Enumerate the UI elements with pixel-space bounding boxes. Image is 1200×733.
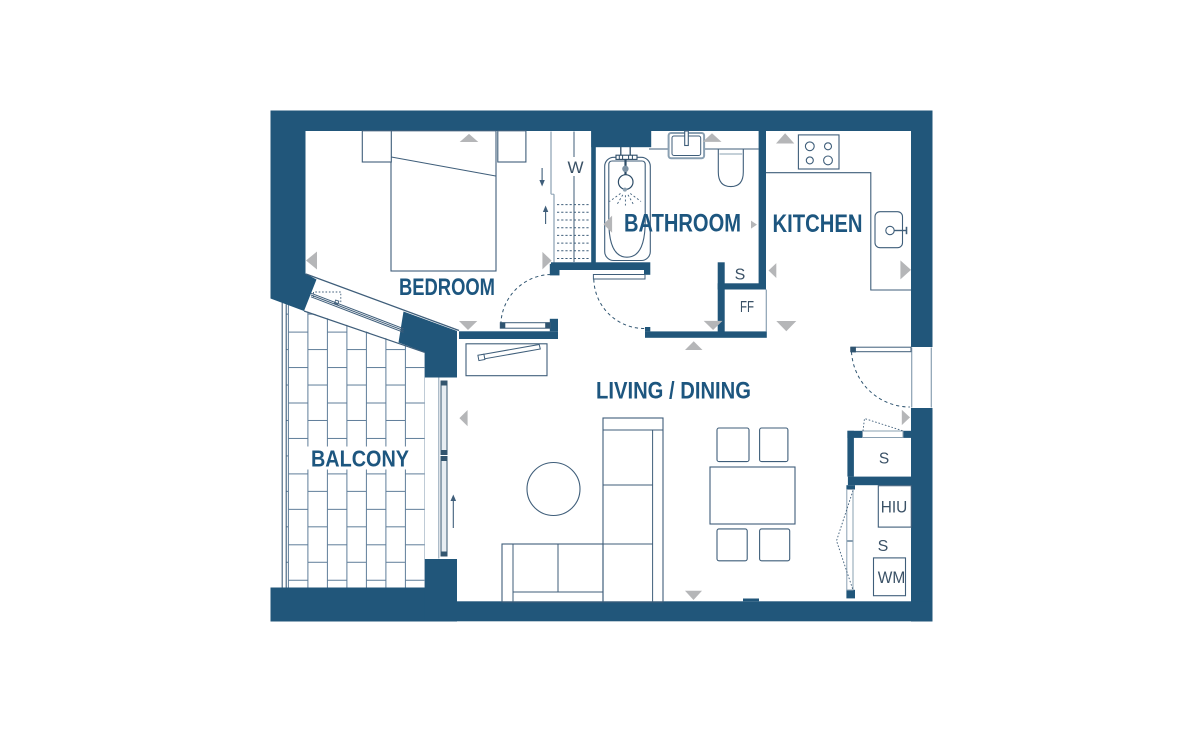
svg-text:S: S	[878, 538, 889, 555]
svg-text:BALCONY: BALCONY	[311, 446, 409, 472]
svg-text:KITCHEN: KITCHEN	[773, 210, 863, 238]
svg-text:S: S	[735, 267, 746, 284]
svg-text:BEDROOM: BEDROOM	[399, 274, 495, 301]
svg-text:WM: WM	[878, 569, 906, 587]
svg-text:BATHROOM: BATHROOM	[624, 210, 741, 238]
svg-text:LIVING / DINING: LIVING / DINING	[596, 378, 751, 405]
svg-text:S: S	[879, 451, 889, 468]
svg-text:FF: FF	[740, 299, 754, 316]
svg-text:W: W	[567, 158, 583, 177]
svg-text:HIU: HIU	[881, 498, 908, 517]
